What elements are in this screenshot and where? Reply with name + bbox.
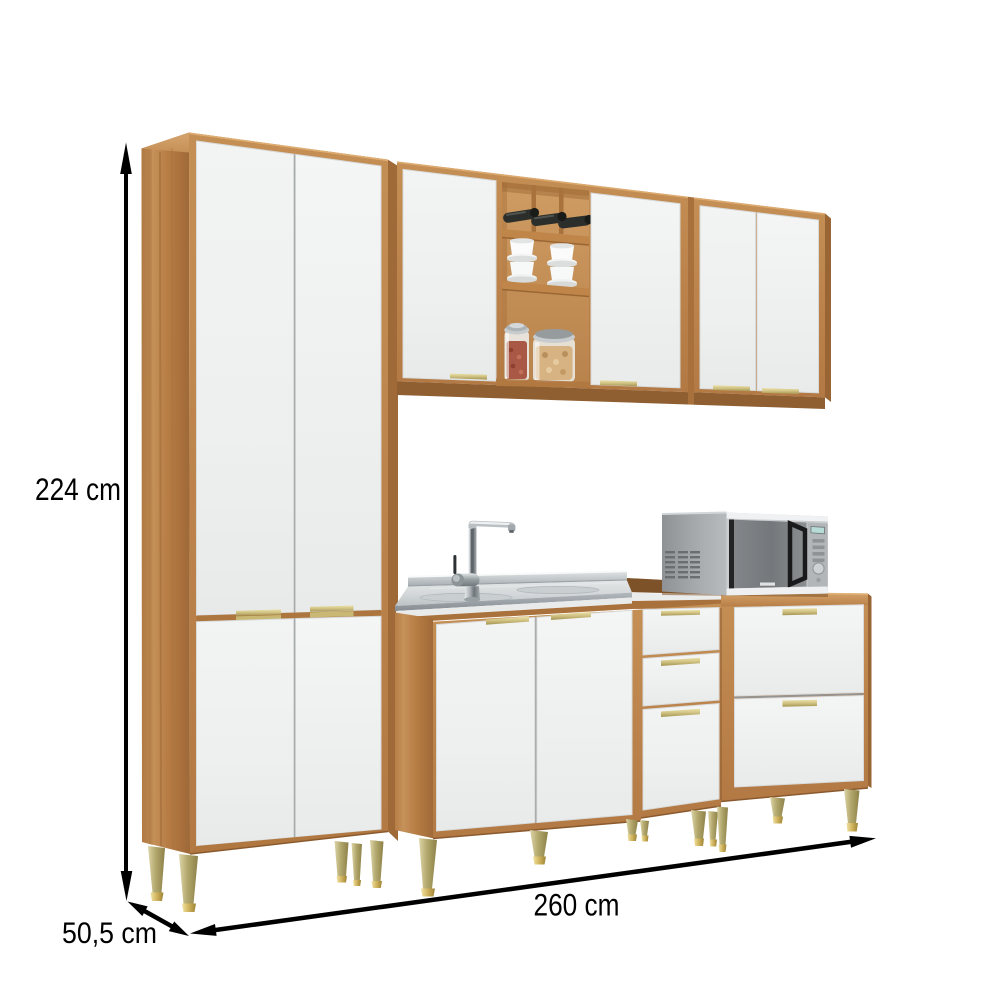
- svg-text:50,5 cm: 50,5 cm: [62, 917, 157, 950]
- svg-text:224 cm: 224 cm: [35, 471, 121, 507]
- svg-text:260 cm: 260 cm: [534, 887, 620, 923]
